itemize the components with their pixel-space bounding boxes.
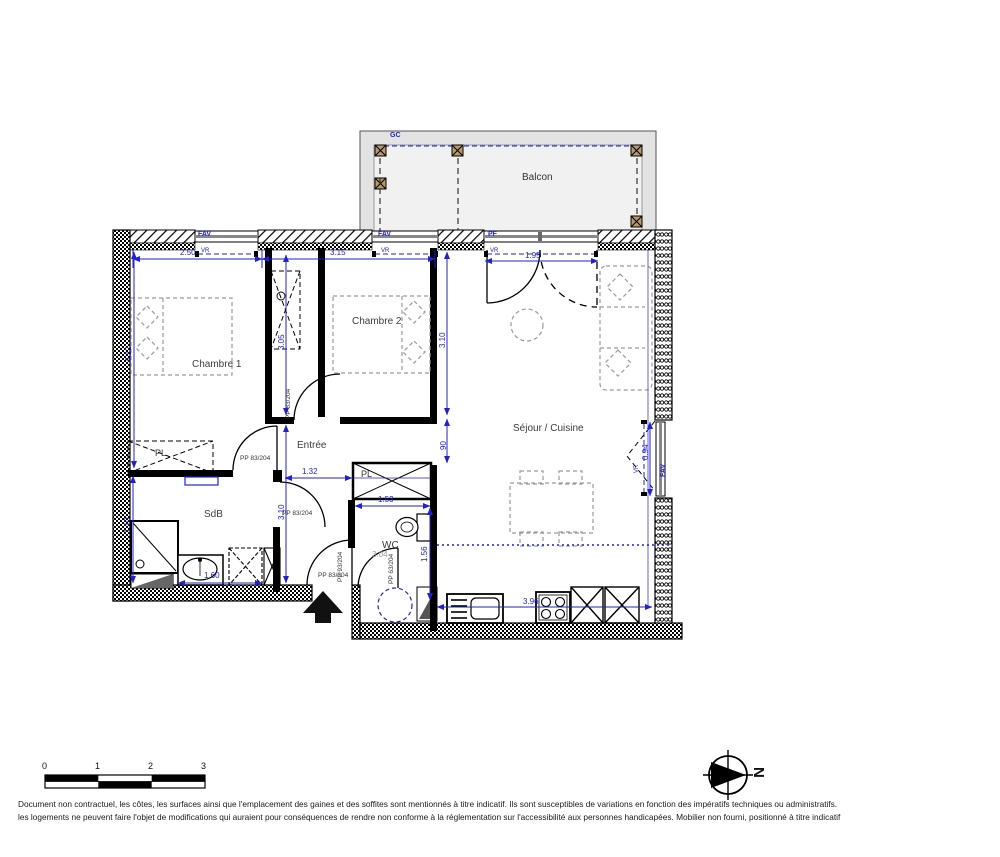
floorplan-page: Balcon GC FAV VR FAV VR PF VR FAV VR Cha… bbox=[0, 0, 1000, 857]
room-entree-label: Entrée bbox=[297, 441, 326, 451]
balcony-label: Balcon bbox=[522, 173, 553, 183]
door-entrance-v-label: PP 93/204 bbox=[338, 552, 345, 582]
dim-top-chambre2: 3.15 bbox=[330, 249, 346, 257]
scalebar-2: 2 bbox=[148, 762, 153, 771]
shutter-vr3-label: VR bbox=[490, 248, 498, 254]
dim-top-chambre1: 2.50 bbox=[180, 249, 196, 257]
disclaimer-line1: Document non contractuel, les côtes, les… bbox=[18, 800, 837, 808]
closet-pl-sdb-label: PL bbox=[155, 449, 166, 458]
floorplan-drawing bbox=[0, 0, 1000, 857]
dim-hall-v: 3.10 bbox=[278, 504, 286, 520]
window-pf-label: PF bbox=[488, 231, 497, 238]
room-chambre2-label: Chambre 2 bbox=[352, 317, 401, 327]
shutter-vr2-label: VR bbox=[381, 248, 389, 254]
scalebar-0: 0 bbox=[42, 762, 47, 771]
closet-pl-wc-label: PL bbox=[361, 470, 372, 479]
door-wc-label: PP 63/204 bbox=[389, 554, 396, 584]
dim-sejour-left: 3.10 bbox=[439, 332, 447, 348]
shutter-vr1-label: VR bbox=[201, 248, 209, 254]
dim-wc-v: 1.56 bbox=[421, 546, 429, 562]
door-sdb-label: PP 83/204 bbox=[282, 511, 312, 518]
window-fav-right-label: FAV bbox=[660, 464, 667, 477]
dim-sdb-w: 1.60 bbox=[204, 572, 220, 580]
north-letter: N bbox=[751, 767, 766, 778]
room-sejour-label: Séjour / Cuisine bbox=[513, 424, 584, 434]
dim-top-sejour: 1.95 bbox=[525, 252, 541, 260]
dim-window-right: 0.94 bbox=[642, 444, 650, 460]
shutter-vr-right-label: VR bbox=[634, 465, 640, 473]
scalebar-3: 3 bbox=[201, 762, 206, 771]
room-chambre1-label: Chambre 1 bbox=[192, 360, 241, 370]
dim-hall-w: 1.32 bbox=[302, 468, 318, 476]
window-fav1-label: FAV bbox=[198, 231, 211, 238]
door-chambre2-label: PP 83/204 bbox=[286, 389, 293, 419]
window-fav2-label: FAV bbox=[378, 231, 391, 238]
dim-closet: 3.05 bbox=[278, 334, 286, 350]
dim-passage: 90 bbox=[440, 441, 448, 450]
scalebar-1: 1 bbox=[95, 762, 100, 771]
door-chambre1-label: PP 83/204 bbox=[240, 456, 270, 463]
dim-sdb-left: 1.10 bbox=[124, 517, 132, 533]
dim-kitchen: 3.96 bbox=[523, 598, 539, 606]
railing-label: GC bbox=[390, 132, 401, 139]
room-sdb-label: SdB bbox=[204, 510, 223, 520]
dim-pl-w: 1.53 bbox=[378, 496, 394, 504]
wc-area-label: 3.04 bbox=[372, 551, 388, 559]
dim-left-chambre1: 4.12 bbox=[125, 346, 133, 362]
disclaimer-line2: les logements ne peuvent faire l'objet d… bbox=[18, 813, 840, 821]
